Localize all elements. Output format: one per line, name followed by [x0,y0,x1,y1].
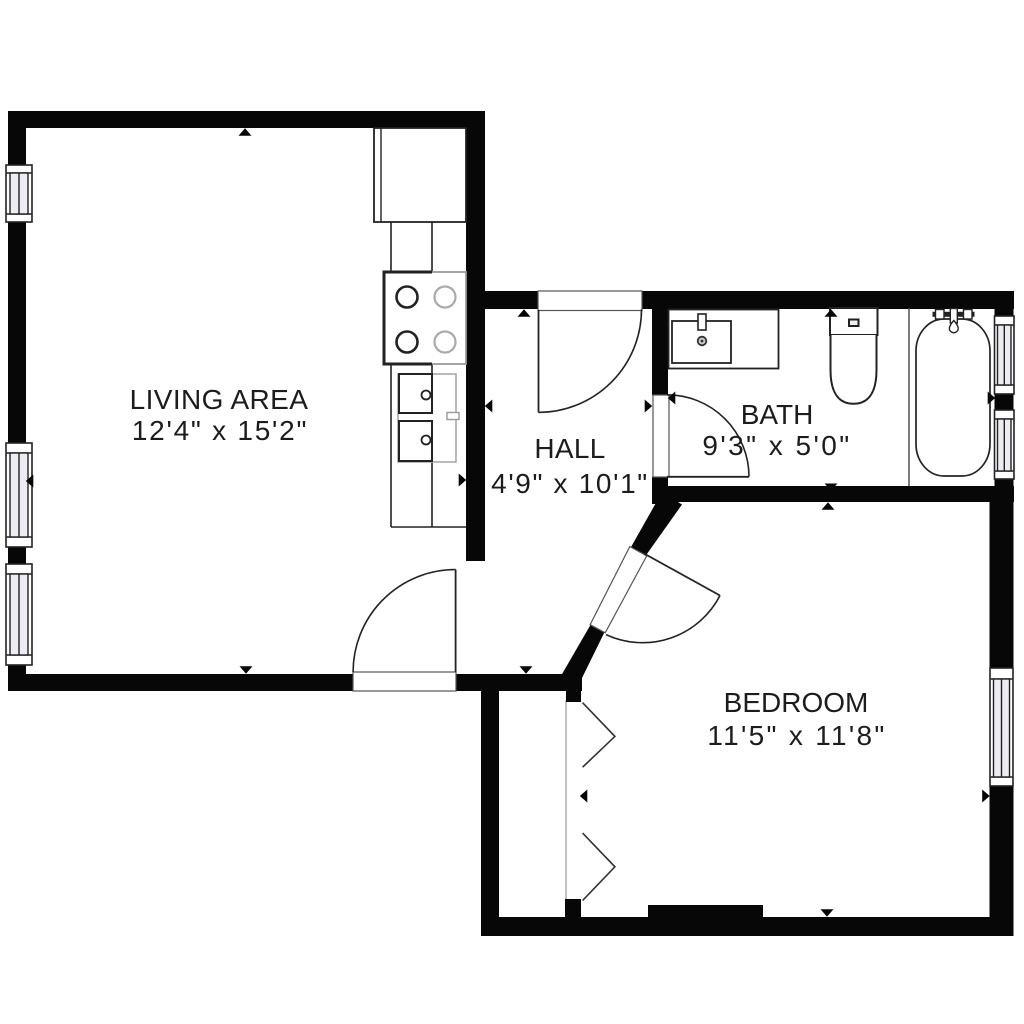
svg-text:BATH: BATH [741,399,814,430]
svg-text:HALL: HALL [534,433,605,464]
svg-text:BEDROOM: BEDROOM [724,687,869,718]
svg-text:4'9" x 10'1": 4'9" x 10'1" [491,468,649,499]
svg-text:9'3" x 5'0": 9'3" x 5'0" [702,430,851,461]
svg-text:12'4" x 15'2": 12'4" x 15'2" [132,415,308,446]
svg-text:11'5" x 11'8": 11'5" x 11'8" [707,720,886,751]
svg-text:LIVING AREA: LIVING AREA [130,384,309,415]
